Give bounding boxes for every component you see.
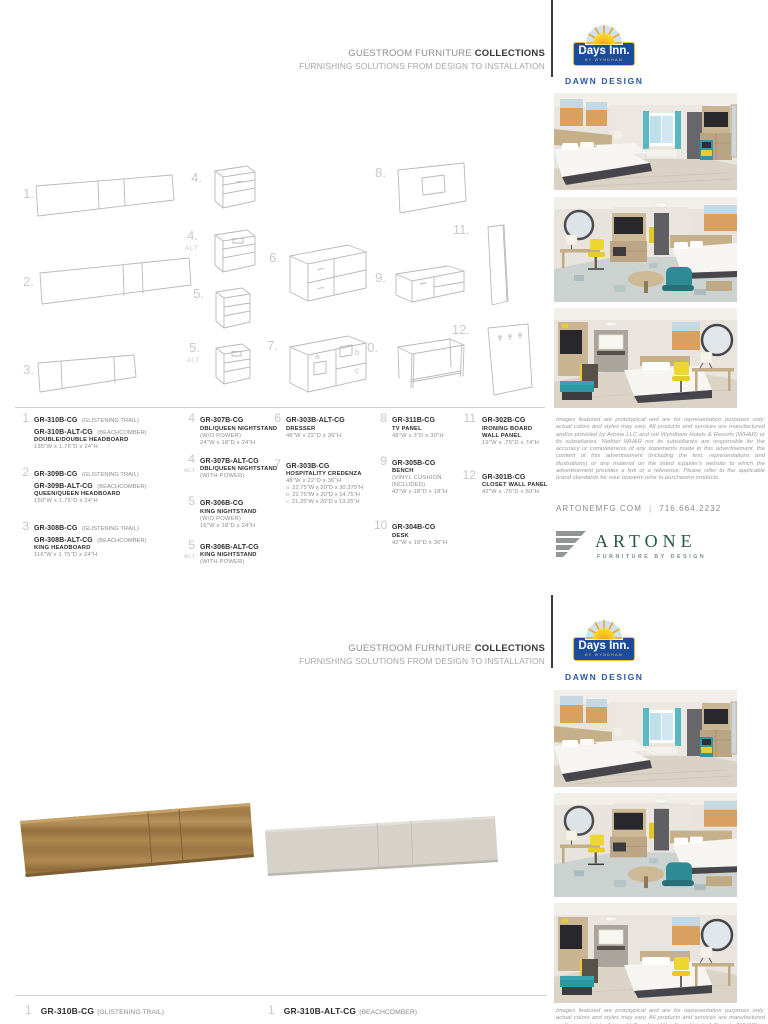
product-code: GR-301B-CG [482, 474, 525, 481]
product-name: KING NIGHTSTAND [200, 552, 280, 559]
product-note: (VINYL CUSHION INCLUDED) [392, 475, 468, 489]
product-code: GR-309B-CG [34, 471, 77, 478]
room-photo-queen-lounge [554, 197, 737, 302]
figure-label-3: 3. [14, 364, 34, 376]
figure-label-2: 2. [14, 276, 34, 288]
item-number: 11 [458, 412, 476, 424]
product-item: 3 GR-308B-CG (GLISTENING TRAIL) GR-308B-… [18, 522, 184, 559]
subdim-value: 22.75"W x 20"D x 30.375"H [292, 485, 363, 491]
drawing-queen-headboard [36, 254, 196, 308]
days-inn-sun-icon [584, 619, 624, 640]
product-item: 1 GR-310B-CG (GLISTENING TRAIL) GR-310B-… [18, 414, 184, 451]
item-number: 7 [270, 458, 281, 470]
days-inn-logo-text: Days Inn. [574, 45, 634, 58]
headboard-render-beachcomber [261, 810, 503, 880]
product-code: GR-304B-CG [392, 524, 435, 531]
drawing-ironing-board-panel [482, 221, 512, 309]
subdim-value: 21.25"W x 20"D x 13.25"H [292, 499, 360, 505]
product-dims: 150"W x 1.75"D x 24"H [34, 498, 184, 505]
product-dims: 42"W x .75"D x 60"H [482, 489, 550, 496]
item-number-value: 4 [188, 452, 195, 466]
product-item: 11 GR-302B-CG IRONING BOARD WALL PANEL 1… [458, 414, 550, 447]
product-item: 4ALT GR-307B-ALT-CG DBL/QUEEN NIGHTSTAND… [184, 455, 280, 481]
product-finish: (BEACHCOMBER) [97, 538, 146, 544]
figure-label-4alt-num: 4. [187, 228, 198, 243]
days-inn-byline: BY WYNDHAM [574, 653, 634, 658]
product-column-4: 8 GR-311B-CG TV PANEL 48"W x 3"D x 30"H … [374, 414, 468, 547]
contact-line: ARTONEMFG.COM|716.664.2232 [556, 504, 721, 513]
drawing-king-nightstand [206, 282, 252, 334]
room-photo-double-queen [554, 690, 737, 787]
room-photo-double-queen [554, 93, 737, 190]
product-note: (W/O POWER) [200, 433, 280, 440]
figure-label-1: 1. [14, 188, 34, 200]
product-code: GR-309B-ALT-CG [34, 483, 93, 490]
product-item: 10 GR-304B-CG DESK 42"W x 19"D x 30"H [374, 521, 468, 547]
product-item: 7 GR-303B-CG HOSPITALITY CREDENZA 48"W x… [270, 460, 376, 507]
product-finish: (BEACHCOMBER) [97, 484, 146, 490]
product-name: DBL/QUEEN NIGHTSTAND [200, 426, 280, 433]
figure-label-6: 6. [260, 252, 280, 264]
product-code: GR-310B-ALT-CG [34, 429, 93, 436]
product-code: GR-310B-CG [34, 417, 77, 424]
item-number: 10 [374, 519, 387, 531]
product-code: GR-306B-CG [200, 500, 243, 507]
collection-name: DAWN DESIGN [565, 672, 643, 682]
legal-disclaimer: Images featured are prototypical and are… [556, 1008, 765, 1024]
product-finish: (GLISTENING TRAIL) [97, 1009, 164, 1016]
item-number-value: 5 [188, 538, 195, 552]
room-photo-king [554, 903, 737, 1003]
product-code: GR-310B-ALT-CG [284, 1006, 357, 1016]
item-number: 3 [18, 520, 29, 532]
figure-label-8: 8. [366, 167, 386, 179]
product-item: 9 GR-305B-CG BENCH (VINYL CUSHION INCLUD… [374, 457, 468, 497]
days-inn-sun-icon [584, 24, 624, 45]
drawing-label-b: b [355, 348, 360, 357]
item-number: 8 [374, 412, 387, 424]
product-name-2: WALL PANEL [482, 433, 550, 440]
legal-disclaimer: Images featured are prototypical and are… [556, 417, 765, 479]
drawing-nightstand [203, 161, 259, 215]
artone-name: ARTONE [595, 531, 697, 552]
subdim-key: a [286, 485, 289, 491]
page-subtitle: FURNISHING SOLUTIONS FROM DESIGN TO INST… [299, 61, 545, 71]
subdim-key: c [286, 499, 289, 505]
product-note: (WITH POWER) [200, 473, 280, 480]
item-number: 4ALT [184, 453, 195, 477]
product-finish: (BEACHCOMBER) [359, 1009, 417, 1016]
figure-label-11: 11. [450, 224, 470, 236]
product-column-5: 11 GR-302B-CG IRONING BOARD WALL PANEL 1… [458, 414, 550, 496]
drawing-bench [390, 261, 470, 309]
product-item: 5ALT GR-306B-ALT-CG KING NIGHTSTAND (WIT… [184, 541, 280, 567]
product-name: DOUBLE/DOUBLE HEADBOARD [34, 437, 184, 444]
product-code: GR-303B-CG [286, 463, 329, 470]
days-inn-logo: Days Inn. BY WYNDHAM [573, 24, 635, 70]
figure-label-4alt: 4.ALT [178, 230, 198, 255]
item-number-alt: ALT [184, 551, 195, 563]
collection-name: DAWN DESIGN [565, 76, 643, 86]
page-title: GUESTROOM FURNITURE COLLECTIONS [348, 643, 545, 654]
product-name: CLOSET WALL PANEL [482, 482, 550, 489]
figure-label-4: 4. [182, 172, 202, 184]
item-number: 1 [268, 1003, 275, 1017]
drawing-nightstand-alt [203, 225, 259, 279]
figure-label-5alt: 5.ALT [180, 342, 200, 367]
product-code: GR-305B-CG [392, 460, 435, 467]
days-inn-logo-text: Days Inn. [574, 640, 634, 653]
product-code: GR-302B-CG [482, 417, 525, 424]
header-divider [551, 0, 553, 77]
product-column-2: 4 GR-307B-CG DBL/QUEEN NIGHTSTAND (W/O P… [184, 414, 280, 566]
item-number: 5 [184, 495, 195, 507]
product-finish: (GLISTENING TRAIL) [82, 472, 139, 478]
product-dims: 116"W x 1.75"D x 24"H [34, 552, 184, 559]
product-column-3: 6 GR-303B-ALT-CG DRESSER 48"W x 22"D x 3… [270, 414, 376, 507]
figure-label-7: 7. [258, 340, 278, 352]
product-finish: (GLISTENING TRAIL) [82, 418, 139, 424]
product-name: KING NIGHTSTAND [200, 509, 280, 516]
product-finish: (GLISTENING TRAIL) [82, 526, 139, 532]
product-note: (WITH POWER) [200, 559, 280, 566]
product-item: 5 GR-306B-CG KING NIGHTSTAND (W/O POWER)… [184, 497, 280, 530]
list-divider [15, 995, 546, 996]
product-subdim: b22.75"W x 20"D x 14.75"H [286, 492, 376, 499]
product-code: GR-307B-CG [200, 417, 243, 424]
product-name: BENCH [392, 468, 468, 475]
product-dims: 42"W x 19"D x 30"H [392, 540, 468, 547]
page-title: GUESTROOM FURNITURE COLLECTIONS [348, 48, 545, 59]
page-title-light: GUESTROOM FURNITURE [348, 48, 472, 59]
product-column-1: 1 GR-310B-CG (GLISTENING TRAIL) GR-310B-… [18, 414, 184, 559]
product-item: 12 GR-301B-CG CLOSET WALL PANEL 42"W x .… [458, 471, 550, 497]
page-title-light: GUESTROOM FURNITURE [348, 643, 472, 654]
product-code: GR-303B-ALT-CG [286, 417, 345, 424]
days-inn-logo-box: Days Inn. BY WYNDHAM [573, 637, 635, 661]
product-dims: 135"W x 1.75"D x 24"H [34, 444, 184, 451]
product-note: (W/O POWER) [200, 516, 280, 523]
drawing-double-headboard [32, 172, 178, 220]
product-dims: 24"W x 18"D x 24"H [200, 440, 280, 447]
product-name: IRONING BOARD [482, 426, 550, 433]
drawing-label-a: a [315, 352, 320, 361]
product-name: DESK [392, 533, 468, 540]
contact-separator: | [649, 504, 652, 513]
product-item: 2 GR-309B-CG (GLISTENING TRAIL) GR-309B-… [18, 468, 184, 505]
product-item: 6 GR-303B-ALT-CG DRESSER 48"W x 22"D x 3… [270, 414, 376, 440]
website: ARTONEMFG.COM [556, 504, 642, 513]
product-dims: 42"W x 18"D x 18"H [392, 489, 468, 496]
item-number: 12 [458, 469, 476, 481]
room-photo-queen-lounge [554, 793, 737, 897]
product-name: QUEEN/QUEEN HEADBOARD [34, 491, 184, 498]
item-number: 1 [18, 412, 29, 424]
product-item: 1GR-310B-ALT-CG(BEACHCOMBER) [268, 1001, 417, 1019]
artone-logo: ARTONE FURNITURE BY DESIGN [556, 531, 756, 571]
drawing-label-c: c [355, 366, 359, 375]
page-title-bold: COLLECTIONS [475, 48, 545, 59]
product-name: TV PANEL [392, 426, 468, 433]
product-code: GR-310B-CG [41, 1006, 94, 1016]
figure-label-5alt-num: 5. [189, 340, 200, 355]
days-inn-byline: BY WYNDHAM [574, 58, 634, 63]
item-number-alt: ALT [184, 465, 195, 477]
product-dims: 48"W x 22"D x 36"H [286, 478, 376, 485]
item-number: 5ALT [184, 539, 195, 563]
product-code: GR-308B-CG [34, 525, 77, 532]
product-dims: 19"W x .75"D x 74"H [482, 440, 550, 447]
product-subdim: a22.75"W x 20"D x 30.375"H [286, 485, 376, 492]
drawing-king-nightstand-alt [206, 338, 252, 390]
product-dims: 48"W x 3"D x 30"H [392, 433, 468, 440]
header-divider [551, 595, 553, 668]
days-inn-logo: Days Inn. BY WYNDHAM [573, 619, 635, 665]
drawing-king-headboard [34, 350, 142, 396]
figure-label-5alt-suffix: ALT [180, 355, 200, 367]
room-photo-king [554, 308, 737, 408]
artone-tagline: FURNITURE BY DESIGN [597, 554, 706, 560]
drawing-desk [388, 334, 468, 394]
drawing-tv-panel [390, 159, 472, 221]
item-number: 6 [270, 412, 281, 424]
product-finish: (BEACHCOMBER) [97, 430, 146, 436]
product-name: DRESSER [286, 426, 376, 433]
product-dims: 16"W x 18"D x 24"H [200, 523, 280, 530]
headboard-render-glistening-trail [16, 799, 258, 881]
item-number: 9 [374, 455, 387, 467]
product-dims: 48"W x 22"D x 36"H [286, 433, 376, 440]
product-code: GR-308B-ALT-CG [34, 537, 93, 544]
product-subdim: c21.25"W x 20"D x 13.25"H [286, 499, 376, 506]
drawing-dresser [282, 239, 372, 309]
page-title-bold: COLLECTIONS [475, 643, 545, 654]
list-divider [15, 407, 545, 408]
document-canvas: GUESTROOM FURNITURE COLLECTIONS FURNISHI… [0, 0, 768, 1024]
drawing-closet-wall-panel [480, 319, 536, 399]
product-code: GR-307B-ALT-CG [200, 458, 259, 465]
subdim-value: 22.75"W x 20"D x 14.75"H [292, 492, 360, 498]
item-number: 2 [18, 466, 29, 478]
days-inn-logo-box: Days Inn. BY WYNDHAM [573, 42, 635, 66]
product-item: 1GR-310B-CG(GLISTENING TRAIL) [25, 1001, 164, 1019]
subdim-key: b [286, 492, 289, 498]
product-name: KING HEADBOARD [34, 545, 184, 552]
product-name: DBL/QUEEN NIGHTSTAND [200, 466, 280, 473]
item-number: 4 [184, 412, 195, 424]
product-item: 4 GR-307B-CG DBL/QUEEN NIGHTSTAND (W/O P… [184, 414, 280, 447]
product-code: GR-311B-CG [392, 417, 435, 424]
drawing-hospitality-credenza: a b c [282, 331, 372, 399]
item-number: 1 [25, 1003, 32, 1017]
product-item: 8 GR-311B-CG TV PANEL 48"W x 3"D x 30"H [374, 414, 468, 440]
product-name: HOSPITALITY CREDENZA [286, 471, 376, 478]
phone-number: 716.664.2232 [659, 504, 721, 513]
product-code: GR-306B-ALT-CG [200, 544, 259, 551]
page-subtitle: FURNISHING SOLUTIONS FROM DESIGN TO INST… [299, 656, 545, 666]
artone-mark-icon [556, 531, 589, 560]
